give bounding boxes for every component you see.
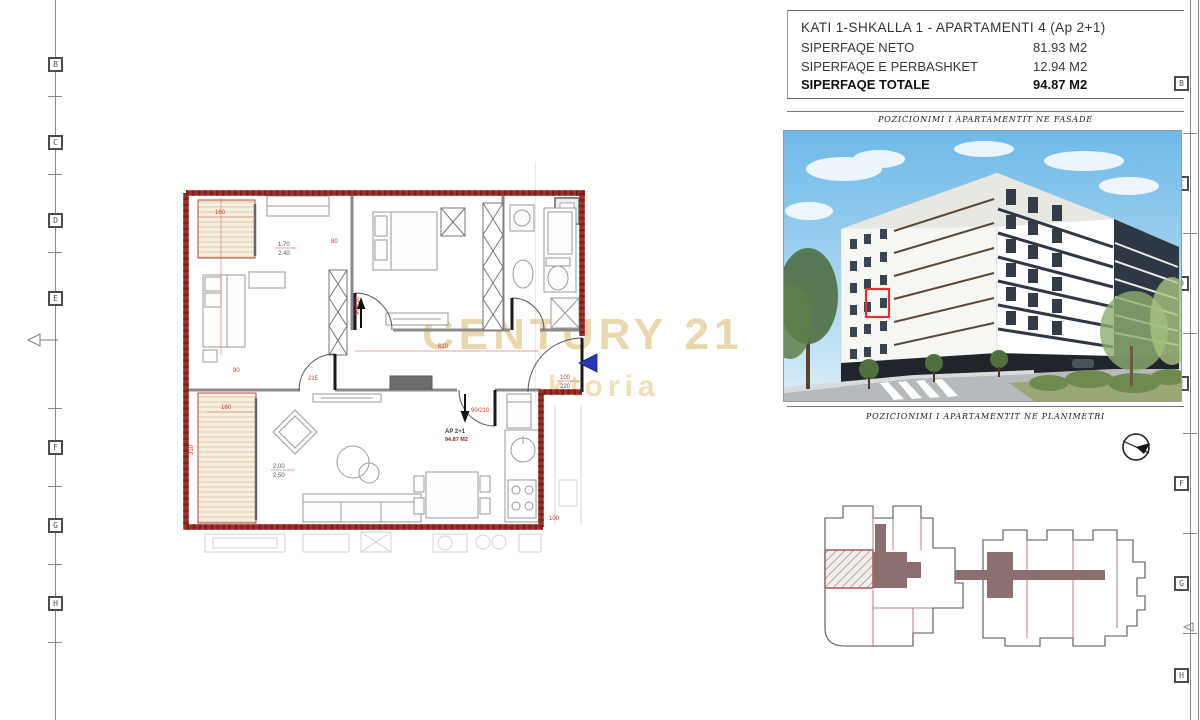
info-row-totale: SIPERFAQE TOTALE 94.87 M2 [801, 76, 1123, 95]
facade-photo [783, 130, 1182, 402]
svg-text:80: 80 [331, 239, 338, 245]
strip-arrow-icon [1182, 620, 1196, 634]
caption-facade: POZICIONIMI I APARTAMENTIT NE FASADE [787, 115, 1184, 124]
divider-line [787, 111, 1184, 112]
car [1072, 359, 1094, 368]
svg-text:160: 160 [221, 405, 232, 411]
svg-text:1.70: 1.70 [278, 242, 290, 248]
svg-text:215: 215 [308, 376, 319, 382]
svg-text:310: 310 [189, 444, 195, 455]
sheet-border-line [55, 0, 56, 720]
grid-label-left-b: B [48, 57, 63, 72]
site-apartment-highlight [825, 550, 873, 588]
unit-label: AP 2+1 [445, 429, 466, 435]
svg-text:160: 160 [215, 210, 226, 216]
info-row-neto: SIPERFAQE NETO 81.93 M2 [801, 39, 1123, 58]
svg-text:2.50: 2.50 [273, 473, 285, 479]
section-marker-icon [24, 330, 60, 350]
svg-text:90/210: 90/210 [471, 408, 490, 414]
svg-text:220: 220 [560, 384, 571, 390]
grid-label-left-c: C [48, 135, 63, 150]
grid-label-left-d: D [48, 213, 63, 228]
grid-label-left-g: G [48, 518, 63, 533]
svg-text:610: 610 [438, 344, 449, 350]
apartment-title: KATI 1-SHKALLA 1 - APARTAMENTI 4 (Ap 2+1… [801, 20, 1184, 35]
svg-text:100: 100 [560, 375, 571, 381]
site-plan [815, 478, 1165, 653]
furniture [203, 196, 579, 522]
unit-area: 94.87 M2 [445, 437, 468, 443]
svg-text:2.40: 2.40 [278, 251, 290, 257]
svg-text:100: 100 [549, 516, 560, 522]
grid-label-right-g: G [1174, 576, 1189, 591]
door-leaves [335, 293, 582, 426]
grid-label-left-e: E [48, 291, 63, 306]
divider-line-2 [787, 406, 1184, 407]
grid-label-right-h: H [1174, 668, 1189, 683]
caption-planimetri: POZICIONIMI I APARTAMENTIT NE PLANIMETRI [787, 412, 1184, 421]
grid-label-left-f: F [48, 440, 63, 455]
grid-label-right-f: F [1174, 476, 1189, 491]
balcony-top [198, 200, 255, 258]
svg-text:90: 90 [233, 368, 240, 374]
svg-text:90/210: 90/210 [355, 296, 361, 315]
apartment-info-panel: KATI 1-SHKALLA 1 - APARTAMENTI 4 (Ap 2+1… [787, 10, 1184, 99]
balcony-left [198, 393, 256, 523]
svg-text:2.00: 2.00 [273, 464, 285, 470]
architectural-sheet: { "header": { "title": "KATI 1-SHKALLA 1… [0, 0, 1200, 720]
floor-plan-drawing: 160 1.70 2.40 80 90 90/210 610 90/210 10… [183, 180, 603, 570]
north-compass-icon [1118, 428, 1156, 466]
grid-label-left-h: H [48, 596, 63, 611]
info-row-perbashket: SIPERFAQE E PERBASHKET 12.94 M2 [801, 58, 1123, 77]
